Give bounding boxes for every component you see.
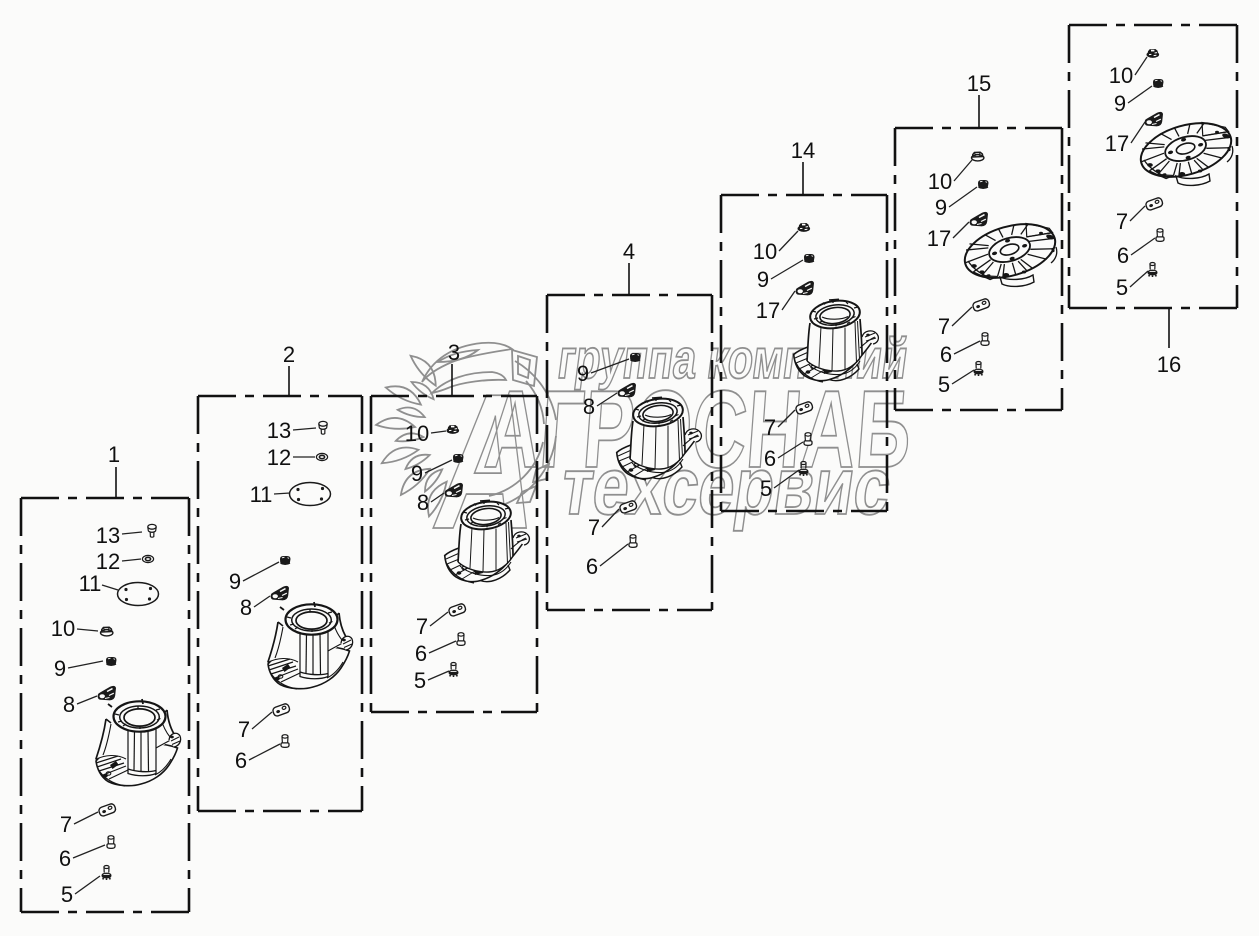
svg-text:8: 8: [240, 595, 252, 620]
svg-text:5: 5: [414, 668, 426, 693]
svg-text:2: 2: [283, 342, 295, 367]
svg-text:6: 6: [415, 641, 427, 666]
svg-text:10: 10: [1109, 63, 1133, 88]
svg-text:6: 6: [764, 446, 776, 471]
svg-text:5: 5: [1116, 275, 1128, 300]
svg-text:17: 17: [1105, 131, 1129, 156]
svg-text:10: 10: [753, 239, 777, 264]
svg-text:7: 7: [588, 515, 600, 540]
svg-text:7: 7: [1116, 209, 1128, 234]
svg-text:17: 17: [927, 226, 951, 251]
svg-text:6: 6: [59, 846, 71, 871]
svg-text:6: 6: [1117, 243, 1129, 268]
svg-text:3: 3: [448, 340, 460, 365]
svg-text:6: 6: [940, 342, 952, 367]
svg-text:10: 10: [51, 616, 75, 641]
svg-text:5: 5: [61, 882, 73, 907]
svg-text:10: 10: [928, 169, 952, 194]
svg-text:техсервис: техсервис: [556, 440, 898, 531]
svg-text:9: 9: [54, 656, 66, 681]
svg-text:1: 1: [108, 442, 120, 467]
svg-text:6: 6: [235, 748, 247, 773]
svg-text:14: 14: [791, 138, 815, 163]
svg-text:8: 8: [63, 692, 75, 717]
svg-text:11: 11: [79, 571, 102, 596]
svg-text:16: 16: [1157, 352, 1181, 377]
svg-text:7: 7: [238, 717, 250, 742]
svg-text:11: 11: [250, 482, 273, 507]
svg-text:7: 7: [416, 614, 428, 639]
svg-text:12: 12: [267, 445, 291, 470]
svg-text:6: 6: [586, 554, 598, 579]
svg-text:9: 9: [935, 195, 947, 220]
svg-text:4: 4: [623, 239, 635, 264]
svg-text:7: 7: [764, 415, 776, 440]
svg-text:13: 13: [267, 418, 291, 443]
svg-text:9: 9: [577, 361, 589, 386]
svg-text:8: 8: [417, 490, 429, 515]
svg-text:9: 9: [757, 267, 769, 292]
svg-text:9: 9: [1114, 91, 1126, 116]
svg-text:9: 9: [229, 569, 241, 594]
svg-text:17: 17: [756, 298, 780, 323]
svg-text:9: 9: [411, 461, 423, 486]
svg-text:7: 7: [938, 314, 950, 339]
svg-text:10: 10: [405, 421, 429, 446]
svg-text:8: 8: [583, 394, 595, 419]
svg-text:15: 15: [967, 71, 991, 96]
svg-text:5: 5: [760, 476, 772, 501]
svg-text:13: 13: [96, 523, 120, 548]
svg-text:5: 5: [938, 372, 950, 397]
svg-text:7: 7: [60, 812, 72, 837]
